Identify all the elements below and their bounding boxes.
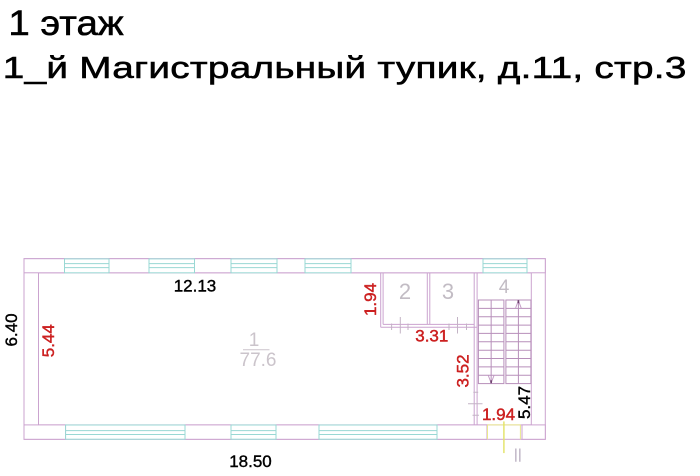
svg-text:1 этаж: 1 этаж	[8, 4, 124, 43]
svg-text:6.40: 6.40	[2, 313, 21, 346]
svg-text:1_й Магистральный тупик, д.11,: 1_й Магистральный тупик, д.11, стр.3	[3, 51, 687, 85]
svg-text:77.6: 77.6	[240, 350, 277, 371]
svg-text:3.52: 3.52	[454, 354, 473, 387]
svg-text:2: 2	[399, 279, 411, 304]
svg-text:1: 1	[249, 330, 260, 351]
svg-text:5.47: 5.47	[515, 386, 534, 419]
svg-text:1.94: 1.94	[482, 405, 515, 424]
svg-text:5.44: 5.44	[39, 324, 58, 357]
svg-text:3.31: 3.31	[415, 327, 448, 346]
svg-text:18.50: 18.50	[229, 452, 272, 471]
svg-text:3: 3	[442, 279, 454, 304]
svg-text:4: 4	[499, 277, 510, 298]
svg-text:1.94: 1.94	[361, 283, 380, 316]
svg-text:12.13: 12.13	[174, 277, 217, 296]
